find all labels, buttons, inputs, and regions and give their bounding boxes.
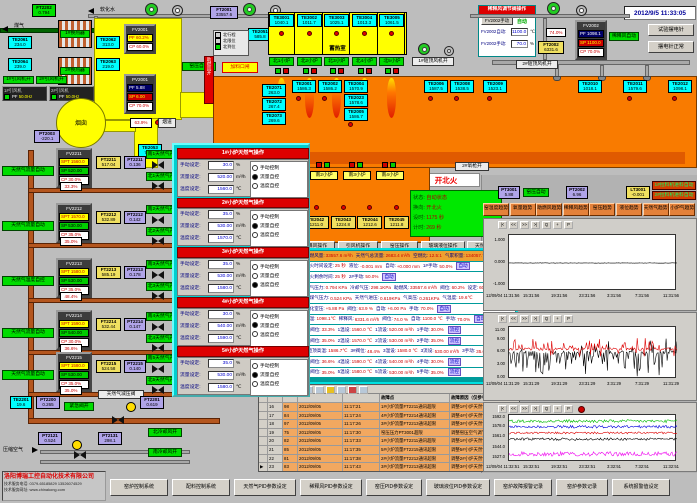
- reversal-legend: 北行程北限位北到位: [213, 30, 249, 56]
- popup-field-input[interactable]: 30.0: [208, 161, 234, 170]
- valve-icon: [152, 271, 164, 279]
- popup-field-input[interactable]: 530.00: [208, 222, 234, 231]
- fan-icon: [576, 5, 587, 16]
- north-burner-1[interactable]: 北1小炉: [269, 57, 294, 66]
- status-dot-icon: [487, 96, 492, 101]
- tag-value: 1018.1: [579, 86, 601, 91]
- dp-value: 1590.0 ℃: [352, 359, 373, 365]
- chart-toolbar-button[interactable]: >|: [531, 315, 540, 323]
- alarm-point: 4#小炉流量FT2214通讯超限: [380, 412, 450, 421]
- popup-field-unit: %: [236, 162, 240, 170]
- dp-value: -0.001 mm: [360, 264, 382, 269]
- chart-toolbar-button[interactable]: >|: [531, 405, 540, 413]
- dp-label: 气温度:: [442, 295, 457, 301]
- tag-value: 1579.6: [624, 86, 646, 91]
- north-burner-5[interactable]: 北5小炉: [379, 57, 404, 66]
- popup-radio-流量自控[interactable]: 流量自控: [252, 222, 306, 229]
- popup-field-label: 温度设定:: [180, 384, 201, 392]
- bottom-button-7[interactable]: 窑炉故障报警记录: [494, 479, 552, 496]
- radio-icon: [252, 322, 258, 328]
- ctl-row-PF: PF 60.2%: [127, 34, 153, 42]
- tag-TE2023: TE20231578.6: [344, 94, 368, 107]
- south-burner-indicator: [357, 162, 363, 168]
- alarm-toolbar-icon[interactable]: [315, 386, 324, 394]
- dp-value: 30.0%: [431, 359, 444, 364]
- fan-hub: [447, 49, 451, 53]
- dp-label: 2手动:: [417, 338, 430, 344]
- chart-ytick: 1592.0: [485, 414, 505, 419]
- popup-field-label: 温度设定:: [180, 186, 201, 194]
- north-burner-4[interactable]: 北4小炉: [352, 57, 377, 66]
- chart-xtick: 7:32:51: [635, 464, 649, 469]
- popup-field-label: 温度设定:: [180, 335, 201, 343]
- alarm-point: 3#小炉流量FT2213通讯超限: [380, 420, 450, 429]
- trend-button-3[interactable]: 助燃风趋势: [536, 203, 562, 216]
- radio-icon: [252, 313, 258, 319]
- fv2002-manual-label: FV2002手动:: [481, 41, 506, 47]
- popup-radio-流量自控[interactable]: 流量自控: [252, 371, 306, 378]
- tag-value: 6.96: [567, 192, 587, 197]
- dp-value: 1560.0 ℃: [352, 327, 373, 333]
- bottom-button-9[interactable]: 系统报警值设定: [612, 479, 670, 496]
- gas-loop-mode-3: 天然气温度自控: [2, 276, 54, 286]
- bubbler-normal-button[interactable]: 摆电针正常: [648, 41, 694, 53]
- chart-toolbar-button[interactable]: <<: [509, 405, 518, 413]
- fan-hub: [579, 8, 584, 13]
- south-burner-2[interactable]: 南2小炉: [310, 171, 338, 180]
- dp-value: 520.00 m³/h: [389, 327, 414, 332]
- dp-label: 3温设:: [383, 348, 396, 354]
- popup-radio-手动控制[interactable]: 手动控制: [252, 164, 306, 171]
- regulator-label: 天然气减压阀: [98, 390, 144, 399]
- chart-xtick: 11:31:29: [663, 381, 679, 386]
- chart-xtick: 12/09/04 11:32:51: [486, 464, 519, 469]
- popup-radio-温度自控[interactable]: 温度自控: [252, 231, 306, 238]
- trend-button-6[interactable]: 液位趋势: [616, 203, 642, 216]
- burner-gas-panel-2: 2#小炉天然气操作 手动设定: 35.0 %流量设定: 530.00 m³/h温…: [177, 198, 309, 246]
- tag-value: 0.265: [37, 402, 59, 407]
- chart-toolbar-button[interactable]: +: [553, 221, 562, 229]
- trend-chart-3: |<<<>>>|Q+P 1592.01578.01561.01544.01527…: [483, 402, 697, 472]
- chart-toolbar-button[interactable]: >>: [520, 221, 529, 229]
- gas-valve-pct-1: 33.3%: [60, 182, 82, 191]
- popup-field-input[interactable]: 35.0: [208, 210, 234, 219]
- tag-TE3001: TE30011040.1: [269, 14, 294, 27]
- alarm-row[interactable]: ▶ 23 83 2012/09/05 11:17:43 3#小炉流量FT2213…: [259, 463, 520, 472]
- chart-toolbar-button[interactable]: Q: [542, 221, 551, 229]
- popup-field-input[interactable]: 1590.0: [208, 334, 234, 343]
- popup-field-input[interactable]: 35.0: [208, 359, 234, 368]
- valve-icon: [152, 386, 164, 394]
- status-dot-icon: [672, 96, 677, 101]
- radio-icon: [252, 372, 258, 378]
- radio-icon: [252, 282, 258, 288]
- status-dot-icon: [314, 205, 319, 210]
- alarm-toolbar-icon[interactable]: [337, 386, 346, 394]
- tag-TE2012: TE20121098.1: [668, 80, 692, 93]
- controller-title: FV2214: [59, 313, 89, 319]
- dp-label: 手动:: [409, 306, 419, 312]
- valve-icon: [152, 344, 164, 352]
- chart-ytick: 1561.0: [485, 433, 505, 438]
- id-fan-1-status: 1#引风机开: [3, 76, 34, 84]
- ctl-row-CP: CP 70.0%: [127, 102, 153, 110]
- popup-field-input[interactable]: 1570.0: [208, 234, 234, 243]
- chart-toolbar-button[interactable]: Q: [542, 405, 551, 413]
- crown-fan-2-chip: 2#碹顶风机开: [516, 60, 558, 69]
- dp-label: 3流设:: [421, 348, 434, 354]
- fan-hub: [175, 8, 180, 13]
- status-dot-icon: [454, 96, 459, 101]
- burner-indicator: [358, 68, 364, 74]
- trend-button-4[interactable]: 稀释风趋势: [563, 203, 589, 216]
- fv2002-manual-setpoint[interactable]: 70.0: [511, 40, 528, 48]
- popup-field-label: 手动设定:: [180, 360, 201, 368]
- popup-panel-title: 3#小炉天然气操作: [177, 247, 309, 258]
- popup-panel-title: 5#小炉天然气操作: [177, 346, 309, 357]
- tag-PT2213: PT22130.178: [124, 266, 146, 279]
- tag-value: 6331.6: [539, 47, 563, 52]
- north-burner-3[interactable]: 北3小炉: [324, 57, 349, 66]
- alarm-row[interactable]: 18 97 2012/09/05 11:17:26 3#小炉流量FT2213通讯…: [259, 420, 520, 429]
- dilution-valve-panel: 稀释风调节阀操作 FV2002手动 自动 FV2002自动: 1100.0 ℃ …: [478, 5, 536, 57]
- tag-TE2072: TE2072267.4: [262, 98, 286, 111]
- valve-icon: [152, 216, 164, 224]
- tag-value: 1211.8: [385, 222, 408, 227]
- south-cooling-chip: 南冷却风开: [148, 448, 182, 457]
- emergency-valve-chip: 紧急阀开: [64, 402, 94, 411]
- status-dot-icon: [428, 96, 433, 101]
- popup-radio-流量自控[interactable]: 流量自控: [252, 272, 306, 279]
- popup-field-input[interactable]: 35.0: [208, 260, 234, 269]
- controller-title: FV2213: [59, 261, 89, 267]
- tag-value: 219.0: [97, 64, 119, 69]
- tag-value: 298.1: [99, 438, 121, 443]
- fan-icon: [418, 43, 430, 55]
- popup-radio-流量自控[interactable]: 流量自控: [252, 173, 306, 180]
- dp-label: 设定:: [468, 285, 478, 291]
- popup-field-unit: %: [236, 311, 240, 319]
- bottom-button-8[interactable]: 窑炉参数记录: [556, 479, 608, 496]
- alarm-row[interactable]: 17 84 2012/09/05 11:17:24 4#小炉流量FT2214通讯…: [259, 412, 520, 421]
- dp-label: 3#阀位:: [350, 348, 366, 354]
- chart-toolbar-button[interactable]: |<: [498, 405, 507, 413]
- popup-radio-温度自控[interactable]: 温度自控: [252, 281, 306, 288]
- chart-xtick: 23:31:56: [579, 293, 595, 298]
- bottom-button-1[interactable]: 窑炉控制系统: [110, 479, 168, 496]
- popup-radio-温度自控[interactable]: 温度自控: [252, 182, 306, 189]
- dp-value: 1100.0 ℃: [423, 316, 443, 322]
- fire-status-line: 状态: 自动状态: [413, 193, 499, 203]
- popup-field-label: 流量设定:: [180, 223, 201, 231]
- popup-field-input[interactable]: 540.00: [208, 322, 234, 331]
- dp-label: 1#手动:: [423, 263, 439, 269]
- alarm-point: 5#小炉流量FT2215通讯超限: [380, 446, 450, 455]
- dp-value: 自动: [382, 273, 395, 281]
- popup-radio-手动控制[interactable]: 手动控制: [252, 313, 306, 320]
- chart-toolbar-button[interactable]: +: [553, 315, 562, 323]
- dp-value: 流控: [448, 337, 461, 345]
- dp-value: 自动: [437, 305, 450, 313]
- gas-valve-pct-5: 35.0%: [60, 386, 82, 395]
- popup-radio-温度自控[interactable]: 温度自控: [252, 380, 306, 387]
- tag-value: 239.0: [9, 64, 31, 69]
- radio-icon: [252, 174, 258, 180]
- dp-value: 70.0%: [457, 317, 470, 322]
- fan-hub: [551, 6, 557, 12]
- gas-valve-pct-3: 48.4%: [60, 292, 82, 301]
- radio-icon: [252, 381, 258, 387]
- popup-radio-手动控制[interactable]: 手动控制: [252, 213, 306, 220]
- tag-PT2002: PT20026.96: [566, 186, 588, 199]
- dp-value: 48.4%: [367, 349, 380, 354]
- dp-label: 自动:: [385, 263, 395, 269]
- dp-value: 6331.6 m³/h: [355, 317, 380, 322]
- popup-field-input[interactable]: 30.0: [208, 310, 234, 319]
- dp-label: 1手动:: [417, 327, 430, 333]
- tag-TE2071: TE2071263.0: [262, 84, 286, 97]
- alarm-row[interactable]: 16 98 2012/09/05 11:17:21 1#小炉流量FT2211通讯…: [259, 403, 520, 412]
- chart-plot-area[interactable]: [508, 234, 676, 290]
- dp-label: 3手动:: [462, 348, 475, 354]
- popup-field-input[interactable]: 530.00: [208, 272, 234, 281]
- chart-toolbar-button[interactable]: P: [564, 221, 573, 229]
- popup-field-input[interactable]: 1580.0: [208, 383, 234, 392]
- alarm-point: 1#小炉流量FT2211通讯超限: [380, 437, 450, 446]
- tag-value: 0.524: [39, 438, 61, 443]
- dp-label: 天然气总流量:: [356, 253, 385, 259]
- popup-radio-手动控制[interactable]: 手动控制: [252, 263, 306, 270]
- south-burner-3[interactable]: 南3小炉: [343, 171, 371, 180]
- ctl-row-PF: PF 5.88: [127, 84, 153, 92]
- alarm-toolbar-icon[interactable]: [348, 386, 357, 394]
- dp-label: 1流设:: [375, 327, 388, 333]
- alarm-row[interactable]: 22 81 2012/09/05 11:17:38 2#小炉流量FT2212通讯…: [259, 455, 520, 464]
- record-icon[interactable]: [578, 406, 585, 413]
- ctl-row-SPT: SPT 1580.0: [59, 268, 89, 276]
- controller-FV2001: FV2001PF 60.2%CP 60.0%: [124, 24, 156, 54]
- tag-value: 1523.1: [484, 86, 506, 91]
- tag-value: -220.1: [35, 136, 59, 141]
- popup-field-unit: m³/h: [236, 372, 246, 380]
- popup-radio-温度自控[interactable]: 温度自控: [252, 331, 306, 338]
- popup-panel-body: 手动设定: 35.0 %流量设定: 530.00 m³/h温度设定: 1580.…: [177, 258, 309, 296]
- chart-toolbar-button[interactable]: +: [553, 405, 562, 413]
- bottom-button-3[interactable]: 天然气PID参数设定: [234, 479, 296, 496]
- alarm-toolbar-icon[interactable]: [359, 386, 368, 394]
- dp-value: 63.9 %: [359, 306, 373, 311]
- chart-ytick: 0.00: [485, 374, 505, 379]
- trend-button-2[interactable]: 氧量趋势: [510, 203, 536, 216]
- popup-field-label: 温度设定:: [180, 235, 201, 243]
- valve-icon: [152, 365, 164, 373]
- south-burner-4[interactable]: 南4小炉: [376, 171, 404, 180]
- tag-value: 267.4: [263, 104, 285, 109]
- valve-icon: [152, 323, 164, 331]
- dp-label: 空燃比:: [413, 253, 428, 259]
- ctl-row-PF: PF 1098.1: [578, 30, 604, 38]
- tag-value: 1570.9: [345, 86, 367, 91]
- dp-value: 530.00 m³/h: [435, 349, 460, 354]
- tag-TE2011: TE20111579.6: [623, 80, 647, 93]
- air-pipe-2: [40, 460, 190, 464]
- fan-panel-freq: PF 50.0Hz: [4, 94, 45, 100]
- dp-label: 阀位:: [382, 316, 392, 322]
- dp-value: 12.5:1: [429, 253, 442, 258]
- dilution-pipe: [470, 14, 630, 18]
- popup-radio-group: 手动控制流量自控温度自控: [250, 310, 308, 347]
- ctl-row-CP: CP 60.0%: [127, 43, 153, 51]
- popup-field-input[interactable]: 520.00: [208, 173, 234, 182]
- chart-toolbar-button[interactable]: <<: [509, 221, 518, 229]
- alarm-row[interactable]: 19 75 2012/09/05 11:17:30 窑压压力PT3001超限 调…: [259, 429, 520, 438]
- compressed-air-label: 压缩空气: [3, 446, 33, 454]
- dp-label: 阀位:: [440, 285, 450, 291]
- popup-radio-流量自控[interactable]: 流量自控: [252, 322, 306, 329]
- popup-field-unit: ℃: [236, 235, 241, 243]
- tag-FT2212: FT2212532.89: [96, 211, 121, 224]
- chart-toolbar-button[interactable]: >|: [531, 221, 540, 229]
- nozzle-icon: [553, 76, 561, 81]
- popup-field-label: 流量设定:: [180, 273, 201, 281]
- fan-hub: [149, 7, 155, 13]
- dp-label: 阀位:: [347, 306, 357, 312]
- burner-indicator: [303, 68, 309, 74]
- chart-plot-area[interactable]: [508, 326, 676, 378]
- chart-toolbar-button[interactable]: |<: [498, 221, 507, 229]
- dp-label: 1温设:: [338, 327, 351, 333]
- dp-value: 1586.7℃: [328, 348, 347, 354]
- dp-label: 液位:: [349, 263, 359, 269]
- tag-PT2131: PT2131298.1: [98, 432, 122, 445]
- chart-toolbar-button[interactable]: >>: [520, 405, 529, 413]
- ctl-row-SP: SP 530.00: [59, 371, 89, 379]
- popup-radio-手动控制[interactable]: 手动控制: [252, 362, 306, 369]
- controller-title: FV2002: [578, 23, 604, 29]
- dp-value: 0.524 KPa: [330, 296, 351, 301]
- trend-button-1[interactable]: 窑温度趋势: [483, 203, 509, 216]
- fv2002-auto-unit: ℃: [530, 29, 535, 35]
- tag-value: 1212.6: [358, 222, 381, 227]
- tag-FT2201: FT22010.619: [140, 396, 164, 409]
- chart-xtick: 12/09/04 11:31:56: [486, 293, 519, 298]
- radio-icon: [252, 363, 258, 369]
- tag-value: 1587.5: [425, 86, 447, 91]
- burner-indicator: [275, 68, 281, 74]
- radio-icon: [252, 331, 258, 337]
- chart-plot-area[interactable]: [508, 414, 676, 461]
- chart-toolbar-button[interactable]: P: [564, 405, 573, 413]
- chart-toolbar-button[interactable]: <<: [509, 315, 518, 323]
- popup-field-input[interactable]: 530.00: [208, 371, 234, 380]
- popup-field-unit: ℃: [236, 186, 241, 194]
- fan-hub: [247, 7, 253, 13]
- chart-xtick: 11:32:51: [663, 464, 679, 469]
- bottom-button-5[interactable]: 窑压PID参数设定: [366, 479, 422, 496]
- dp-label: 稀释风:: [339, 316, 354, 322]
- alarm-point: 1#小炉流量FT2211通讯超限: [380, 403, 450, 412]
- kiln-pressure-auto-chip-2: 窑压自动: [523, 188, 549, 197]
- chart-ytick: -1.000: [485, 281, 505, 286]
- chart-ytick: 11.00: [485, 327, 505, 332]
- trend-chart-1: |<<<>>>|Q+P 1.0000.000-1.00012/09/04 11:…: [483, 218, 697, 311]
- trend-button-8[interactable]: 小炉气趋势: [669, 203, 695, 216]
- alarm-row[interactable]: 21 85 2012/09/05 11:17:35 5#小炉流量FT2215通讯…: [259, 446, 520, 455]
- dp-value: 1580.0 ℃: [352, 369, 373, 375]
- dilution-auto-chip: 稀释风自动: [609, 32, 639, 41]
- dp-value: 2683.4 m³/h: [386, 253, 411, 258]
- popup-panel-title: 2#小炉天然气操作: [177, 198, 309, 209]
- popup-field-input[interactable]: 1580.0: [208, 284, 234, 293]
- damper-position-box: 63.9%: [130, 118, 152, 128]
- dp-label: 5流设:: [375, 369, 388, 375]
- tag-TE2005: TE20051586.7: [344, 108, 368, 121]
- status-dot-icon: [279, 31, 284, 36]
- valve-icon: [152, 292, 164, 300]
- chart-toolbar-button[interactable]: |<: [498, 315, 507, 323]
- alarm-point: 2#小炉流量FT2212通讯超限: [380, 455, 450, 464]
- chart-toolbar-button[interactable]: >>: [520, 315, 529, 323]
- dp-value: 33557.6 m³/h: [410, 285, 437, 290]
- trend-button-7[interactable]: 天然气趋势: [643, 203, 669, 216]
- tag-TE2061: TE2061234.0: [8, 36, 32, 49]
- dp-label: 自动:: [376, 306, 386, 312]
- bottom-button-2[interactable]: 配料控制系统: [172, 479, 230, 496]
- popup-field-input[interactable]: 1560.0: [208, 185, 234, 194]
- tag-value: 1224.8: [332, 222, 355, 227]
- bottom-button-4[interactable]: 稀释风PID参数设定: [300, 479, 362, 496]
- alarm-toolbar-icon[interactable]: [326, 386, 335, 394]
- chart-ytick: 3.00: [485, 361, 505, 366]
- chart-xtick: 7:31:56: [635, 293, 649, 298]
- bottom-button-6[interactable]: 玻璃液位PID参数设定: [426, 479, 490, 496]
- fv2002-auto-setpoint[interactable]: 1100.0: [511, 28, 528, 36]
- tag-TE2010: TE20101018.1: [578, 80, 602, 93]
- chart-toolbar-button[interactable]: P: [564, 315, 573, 323]
- fv2002-manual-unit: %: [530, 41, 534, 46]
- chart-xtick: 15:32:51: [523, 464, 539, 469]
- exchanger-2-label: 2#换热器: [60, 67, 90, 75]
- chart-xtick: 23:32:51: [579, 464, 595, 469]
- trend-button-5[interactable]: 窑压趋势: [589, 203, 615, 216]
- chart-series: [509, 327, 677, 379]
- status-dot-icon: [307, 31, 312, 36]
- chart-xtick: 3:31:56: [607, 293, 621, 298]
- fan-hub: [422, 47, 427, 52]
- tag-LT3001: LT3001-0.001: [626, 186, 650, 199]
- tag-value: 1040.1: [270, 20, 293, 25]
- chart-toolbar-button[interactable]: Q: [542, 315, 551, 323]
- oxygen-lance-chip: 2#氧枪开: [455, 162, 489, 171]
- south-burner-indicator: [316, 162, 322, 168]
- status-dot-icon: [362, 31, 367, 36]
- dp-label: 2流设:: [375, 338, 388, 344]
- radio-icon: [252, 214, 258, 220]
- test-bubbler-button[interactable]: 试验摆电针: [648, 24, 694, 36]
- valve-icon: [74, 451, 86, 459]
- tag-value: 1025.1: [325, 20, 348, 25]
- soft-water-label: 软化水: [100, 6, 124, 14]
- popup-field-unit: m³/h: [236, 223, 246, 231]
- gas-loop-mode-1: 天然气流量自动: [2, 166, 54, 176]
- alarm-row[interactable]: 20 82 2012/09/05 11:17:33 1#小炉流量FT2211通讯…: [259, 437, 520, 446]
- dp-label: 气高压:: [403, 295, 418, 301]
- controller-PV2001: PV2001PF 5.88SP 6.00CP 70.0%: [124, 74, 156, 114]
- burner-gas-panel-4: 4#小炉天然气操作 手动设定: 30.0 %流量设定: 540.00 m³/h温…: [177, 297, 309, 345]
- chart-ytick: 1578.0: [485, 423, 505, 428]
- north-burner-2[interactable]: 北2小炉: [297, 57, 322, 66]
- tag-TE2045: TE20451211.8: [384, 216, 409, 229]
